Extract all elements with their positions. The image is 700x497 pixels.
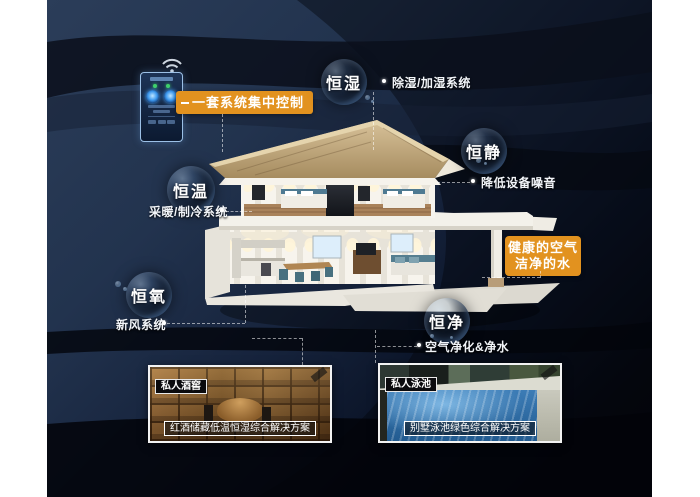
connector-line [375, 330, 376, 363]
wine-cellar-tag: 私人酒窖 [155, 379, 207, 394]
callout-hvac-system: 采暖/制冷系统 [149, 203, 228, 220]
callout-dot [382, 79, 386, 83]
connector-line [252, 338, 302, 339]
connector-line [302, 338, 303, 365]
wine-cellar-caption: 红酒储藏低温恒湿综合解决方案 [164, 421, 316, 436]
connector-line [226, 211, 252, 212]
callout-dot [162, 321, 166, 325]
device-readout-row [148, 105, 175, 108]
callout-purification-system: 空气净化&净水 [425, 338, 509, 355]
bubble-constant-oxygen: 恒氧 [126, 272, 172, 318]
connector-line [377, 346, 417, 347]
device-dial-left [146, 90, 159, 103]
device-dial-right [164, 90, 177, 103]
decor-bubble [476, 158, 481, 163]
callout-dot [417, 343, 421, 347]
callout-dot [220, 208, 224, 212]
infographic-canvas: 一套系统集中控制 健康的空气 洁净的水 恒湿 恒静 恒温 恒氧 恒净 除湿/加湿… [0, 0, 700, 497]
wine-table [217, 398, 263, 422]
connector-line [222, 114, 223, 152]
connector-line [437, 182, 470, 183]
connector-line [245, 285, 246, 323]
pool-dark-corner [380, 390, 387, 441]
device-readout-row [153, 110, 170, 113]
device-button-row [148, 116, 175, 124]
decor-bubble [365, 95, 370, 100]
connector-line [482, 277, 540, 278]
decor-bubble [123, 287, 127, 291]
clean-water-line: 洁净的水 [505, 256, 581, 272]
bubble-constant-humidity: 恒湿 [321, 59, 367, 105]
device-title-bar [150, 77, 173, 81]
callout-humidity-system: 除湿/加湿系统 [392, 74, 471, 91]
connector-line [167, 323, 245, 324]
pool-caption: 别墅泳池绿色综合解决方案 [404, 421, 536, 436]
connector-line [373, 92, 374, 150]
device-status-leds [148, 84, 175, 88]
connector-line [540, 271, 541, 278]
pool-deck-right [537, 390, 560, 441]
pool-photo: 私人泳池 别墅泳池绿色综合解决方案 [378, 363, 562, 443]
central-control-badge: 一套系统集中控制 [176, 91, 313, 114]
pool-tag: 私人泳池 [385, 377, 437, 392]
wine-stool [204, 405, 213, 421]
callout-fresh-air-system: 新风系统 [116, 316, 166, 333]
device-dials [144, 90, 179, 103]
callout-noise-reduction: 降低设备噪音 [481, 174, 556, 191]
healthy-air-water-badge: 健康的空气 洁净的水 [505, 236, 581, 276]
house-cutaway-illustration [195, 112, 570, 357]
decor-bubble [484, 162, 487, 165]
bubble-constant-quiet: 恒静 [461, 128, 507, 174]
callout-dot [471, 179, 475, 183]
healthy-air-line: 健康的空气 [505, 240, 581, 256]
wine-cellar-photo: 私人酒窖 红酒储藏低温恒湿综合解决方案 [148, 365, 332, 443]
decor-bubble [115, 281, 121, 287]
wifi-icon [161, 57, 183, 73]
